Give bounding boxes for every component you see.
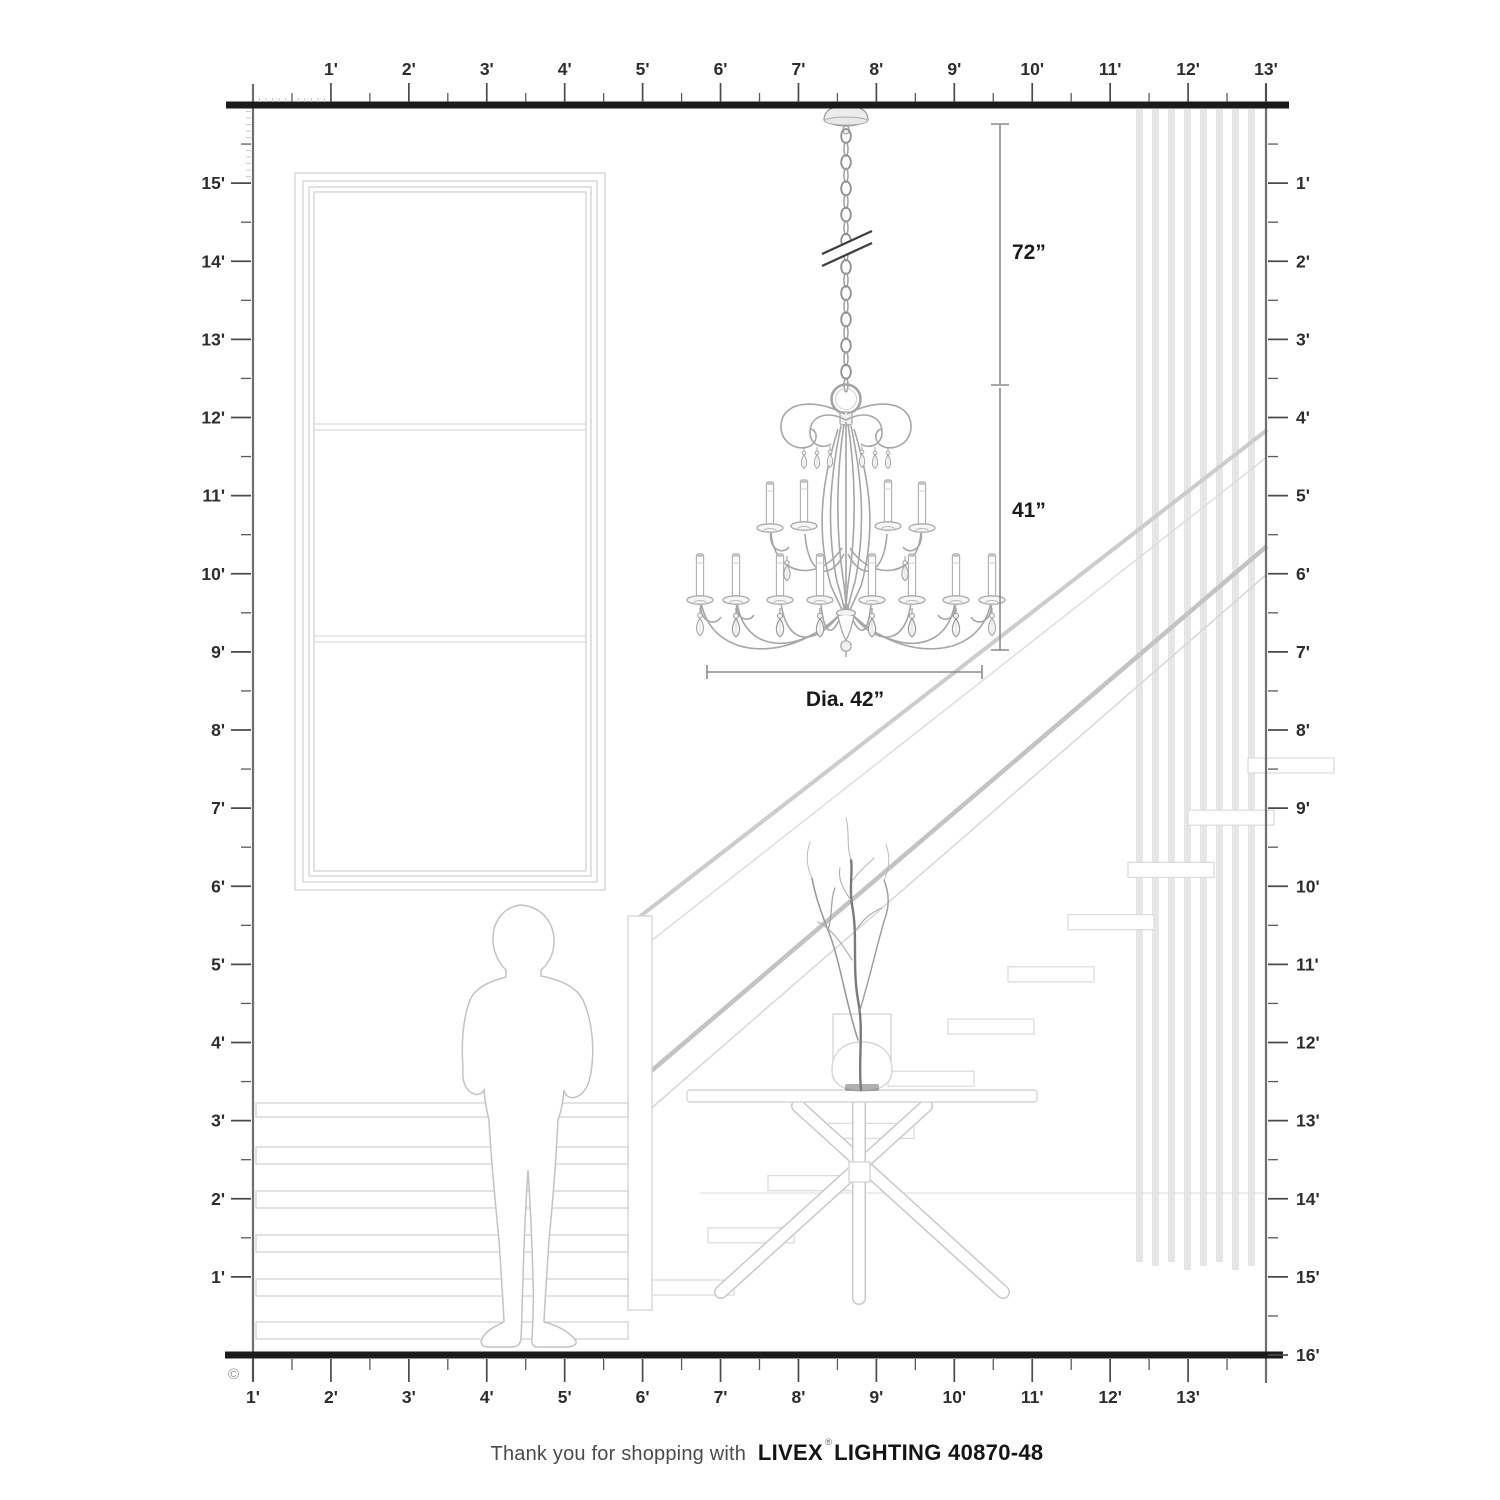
railing-board xyxy=(256,1103,628,1117)
chain-link xyxy=(841,286,851,300)
ruler-label: 12' xyxy=(1296,1033,1320,1053)
chandelier-chain xyxy=(841,129,851,392)
ruler-label: 4' xyxy=(480,1387,494,1407)
ruler-label: 11' xyxy=(1296,954,1319,974)
chain-link xyxy=(844,273,848,287)
ruler-label: 14' xyxy=(201,251,225,271)
diameter-label: Dia. 42” xyxy=(806,688,884,711)
dimension-diameter: Dia. 42” xyxy=(707,665,982,711)
ruler-label: 1' xyxy=(324,59,338,79)
stair-tread xyxy=(1248,758,1334,773)
ruler-label: 8' xyxy=(792,1387,806,1407)
chain-link xyxy=(844,352,848,366)
ruler-label: 11' xyxy=(202,486,225,506)
ruler-label: 6' xyxy=(211,876,225,896)
ruler-right: 1'2'3'4'5'6'7'8'9'10'11'12'13'14'15'16' xyxy=(1268,144,1320,1365)
stair-treads xyxy=(648,758,1334,1295)
hanging-height-label: 72” xyxy=(1012,241,1046,264)
chain-link xyxy=(844,221,848,235)
dining-table xyxy=(687,1090,1037,1298)
ruler-label: 8' xyxy=(869,59,883,79)
stair-tread xyxy=(948,1019,1034,1034)
ruler-label: 12' xyxy=(1176,59,1200,79)
chain-link xyxy=(844,299,848,313)
dimension-hanging-height: 72” xyxy=(991,124,1046,385)
size-chart-diagram: 72” 41” Dia. 42” 1'2'3'4'5'6'7'8'9'10'11… xyxy=(0,0,1500,1500)
ruler-label: 13' xyxy=(1296,1111,1320,1131)
ruler-label: 7' xyxy=(1296,642,1310,662)
railing-board xyxy=(256,1235,628,1252)
ruler-label: 11' xyxy=(1021,1387,1044,1407)
ruler-label: 2' xyxy=(211,1189,225,1209)
ruler-label: 4' xyxy=(1296,408,1310,428)
registered-mark: ® xyxy=(823,1437,834,1448)
ruler-label: 10' xyxy=(942,1387,966,1407)
footer-product: LIGHTING 40870-48 xyxy=(834,1440,1043,1465)
ruler-label: 5' xyxy=(558,1387,572,1407)
ruler-label: 2' xyxy=(1296,251,1310,271)
ruler-label: 5' xyxy=(1296,486,1310,506)
ruler-label: 3' xyxy=(402,1387,416,1407)
ruler-label: 13' xyxy=(1176,1387,1200,1407)
fixture-height-label: 41” xyxy=(1012,499,1046,522)
ruler-label: 4' xyxy=(558,59,572,79)
ruler-label: 9' xyxy=(869,1387,883,1407)
ruler-label: 7' xyxy=(211,798,225,818)
chain-link xyxy=(841,260,851,274)
table-top xyxy=(687,1090,1037,1102)
stair-tread xyxy=(1188,810,1274,825)
ruler-label: 7' xyxy=(792,59,806,79)
chain-link xyxy=(844,326,848,340)
ruler-label: 2' xyxy=(324,1387,338,1407)
ruler-label: 7' xyxy=(714,1387,728,1407)
railing-board xyxy=(256,1147,628,1164)
ruler-label: 3' xyxy=(480,59,494,79)
chain-link xyxy=(844,195,848,209)
ruler-label: 6' xyxy=(1296,564,1310,584)
chandelier-finial xyxy=(837,609,856,657)
chandelier-ring xyxy=(832,385,861,426)
stair-tread xyxy=(1008,967,1094,982)
copyright-symbol: © xyxy=(228,1366,239,1383)
ruler-label: 1' xyxy=(211,1267,225,1287)
stair-tread xyxy=(1128,862,1214,877)
chain-link xyxy=(841,155,851,169)
ruler-label: 1' xyxy=(1296,173,1310,193)
ruler-label: 3' xyxy=(1296,329,1310,349)
ruler-top: 1'2'3'4'5'6'7'8'9'10'11'12'13' xyxy=(259,59,1277,102)
table-leg-x xyxy=(721,1104,1003,1298)
window xyxy=(295,173,605,890)
chain-link xyxy=(841,339,851,353)
diagram-canvas: 72” 41” Dia. 42” 1'2'3'4'5'6'7'8'9'10'11… xyxy=(0,0,1500,1500)
ruler-label: 13' xyxy=(201,329,225,349)
chain-link xyxy=(844,142,848,156)
chandelier-body xyxy=(687,404,1005,657)
footer: Thank you for shopping with LIVEX®LIGHTI… xyxy=(0,1440,1500,1466)
chain-link xyxy=(841,365,851,379)
ruler-label: 14' xyxy=(1296,1189,1320,1209)
ruler-label: 8' xyxy=(1296,720,1310,740)
chain-link xyxy=(841,181,851,195)
ruler-label: 15' xyxy=(201,173,225,193)
ruler-label: 3' xyxy=(211,1111,225,1131)
ruler-label: 10' xyxy=(1296,876,1320,896)
dimension-fixture-height: 41” xyxy=(991,388,1046,650)
railing-board xyxy=(256,1279,628,1296)
ruler-label: 15' xyxy=(1296,1267,1320,1287)
stair-tread xyxy=(888,1071,974,1086)
ruler-label: 2' xyxy=(402,59,416,79)
railing-board xyxy=(256,1191,628,1208)
ruler-label: 12' xyxy=(1098,1387,1122,1407)
ruler-label: 16' xyxy=(1296,1345,1320,1365)
railing-boards xyxy=(256,1103,628,1339)
ruler-label: 13' xyxy=(1254,59,1278,79)
newel-post xyxy=(628,916,652,1310)
footer-text: Thank you for shopping with xyxy=(491,1443,747,1465)
chain-link xyxy=(841,312,851,326)
ruler-left: 15'14'13'12'11'10'9'8'7'6'5'4'3'2'1' xyxy=(201,112,251,1287)
window-mullion xyxy=(314,424,586,642)
ruler-label: 1' xyxy=(246,1387,260,1407)
ruler-label: 10' xyxy=(201,564,225,584)
ruler-bottom: 13'12'11'10'9'8'7'6'5'4'3'2'1' xyxy=(246,1359,1227,1407)
chain-link xyxy=(841,208,851,222)
ruler-label: 5' xyxy=(211,954,225,974)
ruler-label: 12' xyxy=(201,408,225,428)
vertical-blinds xyxy=(1136,109,1255,1270)
ruler-label: 5' xyxy=(636,59,650,79)
ruler-label: 8' xyxy=(211,720,225,740)
chandelier xyxy=(687,106,1005,657)
ruler-label: 11' xyxy=(1099,59,1122,79)
chain-link xyxy=(844,168,848,182)
vase-body xyxy=(832,1042,892,1091)
stair-tread xyxy=(1068,915,1154,930)
ruler-label: 6' xyxy=(636,1387,650,1407)
ruler-label: 6' xyxy=(714,59,728,79)
vase-with-branches xyxy=(807,818,892,1091)
ruler-label: 4' xyxy=(211,1033,225,1053)
ruler-label: 10' xyxy=(1020,59,1044,79)
ruler-label: 9' xyxy=(211,642,225,662)
ruler-label: 9' xyxy=(1296,798,1310,818)
footer-brand: LIVEX xyxy=(758,1440,823,1465)
ruler-label: 9' xyxy=(947,59,961,79)
